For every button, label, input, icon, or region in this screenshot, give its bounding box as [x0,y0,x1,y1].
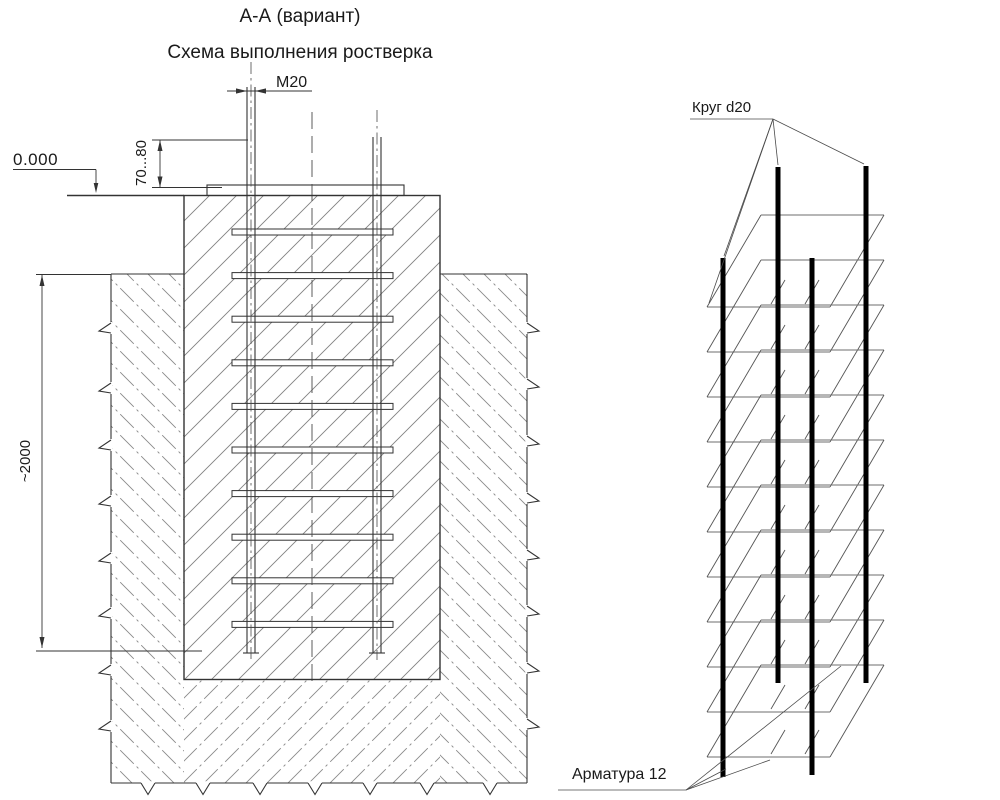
anchor-rung [232,621,393,627]
circle-label: Круг d20 [692,99,751,116]
stirrup-ring-line [830,215,884,307]
stirrup-ring-line [707,530,761,622]
base-plate [207,185,404,196]
label-rebar-leader: Арматура 12 [558,666,841,790]
stirrup-ring-line [830,395,884,487]
dim-m20: М20 [227,74,312,94]
m20-label: М20 [276,74,307,91]
stirrup-ring-line [830,440,884,532]
anchor-rung [232,403,393,409]
break-mark [99,721,111,731]
dim-protrusion: 70...80 [133,140,248,188]
break-mark [527,323,539,333]
break-mark [527,436,539,446]
stirrup-ring-line [707,485,761,577]
anchor-rung [232,447,393,453]
stirrup-ring-line [707,350,761,442]
break-mark [99,383,111,393]
stirrup-ring-line [830,485,884,577]
stirrup-ring-line [830,350,884,442]
anchor-rung [232,273,393,279]
stirrup-ring-line [830,665,884,757]
anchor-rung [232,229,393,235]
break-mark [99,323,111,333]
drawing-svg: А-А (вариант) Схема выполнения ростверка [0,0,1000,800]
anchor-rung [232,534,393,540]
stirrup-ring-line [830,305,884,397]
break-mark [99,665,111,675]
stirrup-ring-line [771,685,785,709]
depth-label: ~2000 [17,440,34,482]
rebar-cage: Круг d20 Арматура 12 [558,99,884,790]
stirrup-ring-line [707,305,761,397]
break-mark [527,606,539,616]
anchor-rung [232,360,393,366]
stirrup-ring-line [830,260,884,352]
stirrup-ring-line [830,620,884,712]
rebar-label: Арматура 12 [572,766,667,783]
stirrup-ring-line [830,530,884,622]
stirrup-ring-line [707,440,761,532]
section-title: А-А (вариант) [240,6,361,27]
stirrup-ring-line [707,260,761,352]
stirrup-ring-line [771,730,785,754]
section-subtitle: Схема выполнения ростверка [167,42,433,63]
cad-drawing: А-А (вариант) Схема выполнения ростверка [0,0,1000,800]
stirrup-ring-line [707,575,761,667]
rebar-bars [723,166,866,777]
section-view: М20 0.000 70...80 ~2000 [13,62,539,795]
dim-elevation: 0.000 [13,150,98,193]
break-mark [99,440,111,450]
break-mark [99,553,111,563]
anchor-rung [232,316,393,322]
stirrup-ring-line [707,395,761,487]
protrusion-label: 70...80 [133,140,150,186]
anchor-rung [232,491,393,497]
break-mark [527,663,539,673]
anchor-rung [232,578,393,584]
stirrup-ring-line [830,575,884,667]
break-mark [527,550,539,560]
break-mark [99,608,111,618]
break-mark [527,493,539,503]
break-mark [527,719,539,729]
stirrup-ring-line [707,665,761,757]
break-mark [527,379,539,389]
elevation-label: 0.000 [13,150,58,169]
stirrup-ring-line [707,620,761,712]
stirrup-rings [707,215,884,757]
break-mark [99,496,111,506]
